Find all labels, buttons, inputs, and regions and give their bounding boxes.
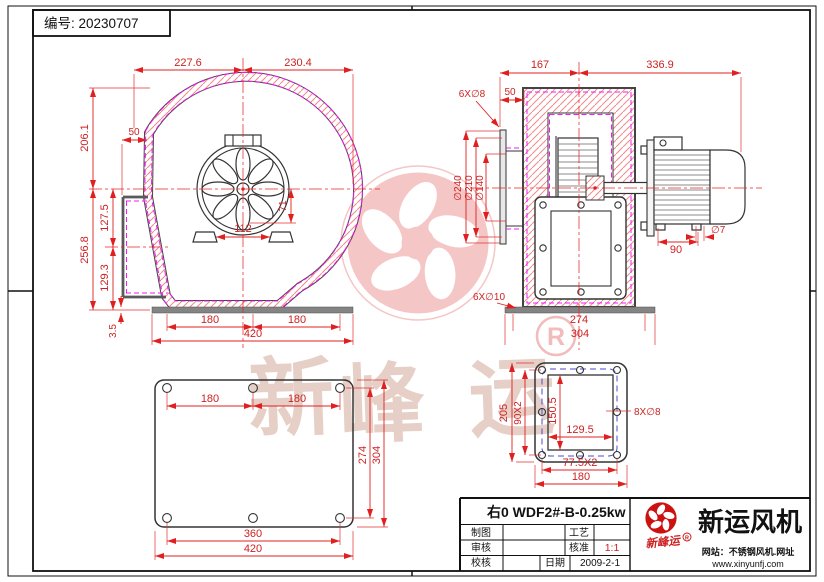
dim-front-bolt-left: 180 (201, 314, 219, 326)
dim-side-50: 50 (504, 87, 516, 98)
dim-base-bolt-width: 360 (244, 528, 262, 540)
checker-label: 校核 (471, 556, 491, 569)
label-base-holes: 6X∅10 (473, 292, 506, 303)
dim-front-base-thickness: 3.5 (108, 324, 119, 338)
dim-front-feet-span: 112 (234, 223, 252, 235)
dim-flange-opening-width: 129.5 (566, 424, 594, 436)
label-flange-holes: 8X∅8 (634, 407, 661, 418)
approve-label: 核准 (569, 541, 589, 554)
dim-flange-bolt-vert: 90X2 (513, 401, 524, 425)
dim-front-base-width: 420 (244, 328, 262, 340)
mount-foot-right (269, 232, 293, 242)
dim-base-bolt-left: 180 (201, 393, 219, 405)
dim-side-336-9: 336.9 (646, 59, 674, 71)
motor-foot-left (656, 224, 665, 230)
company-name: 新运风机 (698, 507, 802, 537)
label-inlet-holes: 6X∅8 (459, 89, 486, 100)
reviewer-label: 审核 (471, 541, 491, 554)
company-url: www.xinyunfj.com (711, 559, 784, 569)
company-logo-icon (645, 502, 676, 533)
dim-side-304: 304 (571, 328, 589, 340)
outlet-flange-face (535, 197, 626, 299)
dim-front-offset-50: 50 (128, 127, 140, 138)
dim-side-274: 274 (570, 314, 588, 326)
watermark-char-2: 峰 (337, 356, 426, 455)
dim-front-bolt-right: 180 (288, 314, 306, 326)
base-plate-edge-side (505, 307, 655, 313)
motor-end-cap (710, 150, 745, 224)
engineering-drawing: R 新 峰 运 (0, 0, 824, 582)
base-plate-edge (152, 307, 353, 313)
label-foot-hole: ∅7 (711, 225, 726, 236)
dim-front-outlet-lower: 129.3 (99, 264, 111, 292)
motor (641, 137, 745, 236)
date-label: 日期 (545, 557, 565, 569)
motor-foot-right (692, 224, 701, 230)
registered-small: R (685, 536, 689, 542)
drafter-label: 制图 (471, 526, 491, 539)
motor-body (654, 150, 710, 224)
drawing-canvas: R 新 峰 运 (0, 0, 824, 582)
dim-front-inlet-radius: 71 (278, 200, 289, 212)
scale-value: 1:1 (605, 542, 620, 554)
dim-dia-210: ∅210 (464, 175, 475, 201)
dim-flange-outer-width: 180 (572, 471, 590, 483)
mount-foot-left (193, 232, 217, 242)
dim-front-height-upper: 206.1 (79, 124, 91, 152)
registered-mark: R (547, 323, 565, 351)
dim-front-height-lower: 256.8 (79, 236, 91, 264)
dim-motor-feet-90: 90 (670, 244, 682, 256)
company-website-line: 网站：不锈钢风机.网址 (702, 546, 795, 557)
dim-base-bolt-right: 180 (288, 393, 306, 405)
dim-dia-240: ∅240 (453, 175, 464, 201)
process-label: 工艺 (569, 527, 589, 539)
date-value: 2009-2-1 (580, 558, 620, 569)
dim-flange-bolt-width: 77.5X2 (563, 457, 598, 469)
dim-base-bolt-vert: 274 (357, 446, 369, 464)
motor-terminal-box (654, 137, 682, 150)
dim-base-plate-width: 420 (244, 543, 262, 555)
model-designation: 右0 WDF2#-B-0.25kw (486, 504, 626, 520)
doc-number: 编号: 20230707 (44, 16, 139, 31)
dim-dia-140: ∅140 (475, 175, 486, 201)
dim-front-top-left: 227.6 (174, 57, 202, 69)
dim-front-top-right: 230.4 (284, 57, 312, 69)
dim-flange-outer-height: 205 (498, 404, 510, 422)
dim-flange-opening-height: 150.5 (547, 397, 559, 425)
dim-side-167: 167 (531, 59, 549, 71)
dim-front-outlet-center: 127.5 (99, 204, 111, 232)
dim-base-plate-height: 304 (371, 446, 383, 464)
inlet-flange (500, 130, 506, 244)
